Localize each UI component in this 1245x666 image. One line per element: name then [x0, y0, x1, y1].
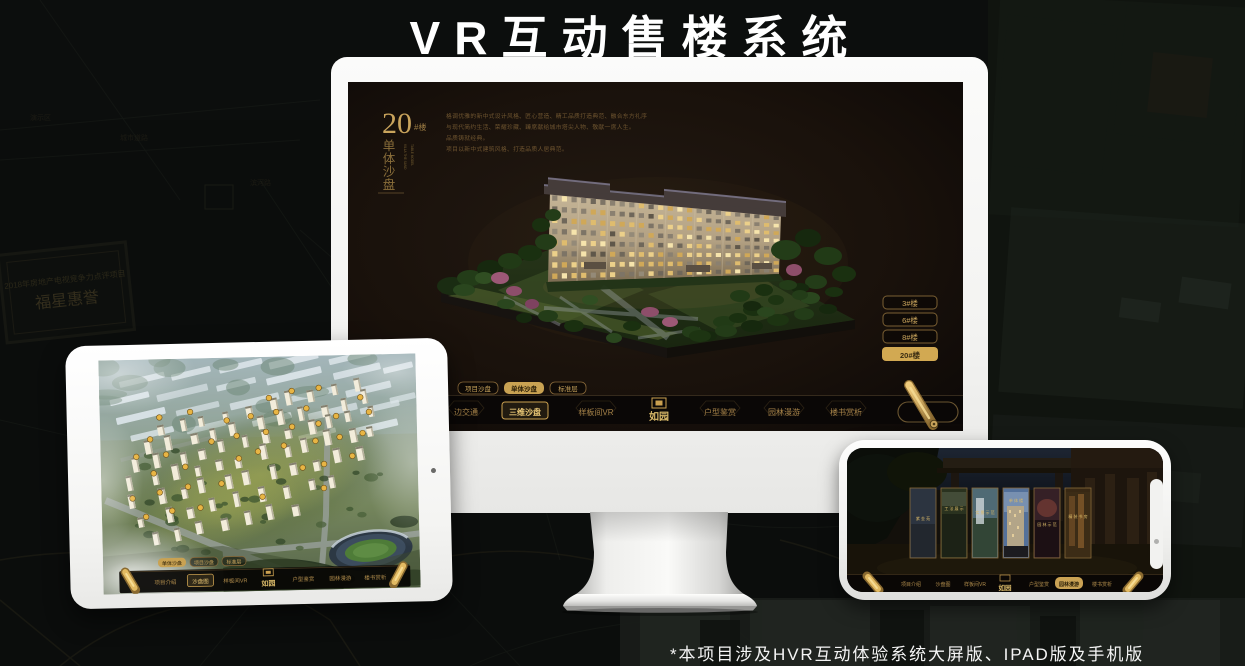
svg-text:单体沙盘: 单体沙盘 — [511, 384, 538, 393]
svg-text:样板间VR: 样板间VR — [964, 581, 986, 588]
svg-text:边交通: 边交通 — [454, 407, 478, 417]
svg-text:8#楼: 8#楼 — [902, 332, 918, 342]
svg-text:TABLE MODEL: TABLE MODEL — [410, 144, 414, 166]
svg-text:城市道路: 城市道路 — [120, 133, 148, 142]
svg-text:三维沙盘: 三维沙盘 — [509, 407, 541, 417]
svg-text:20: 20 — [382, 107, 412, 140]
svg-text:格调优雅的新中式设计风格、匠心营造、精工品质打造典范、融合东: 格调优雅的新中式设计风格、匠心营造、精工品质打造典范、融合东方礼序 — [446, 112, 647, 120]
svg-text:实 景 示 范: 实 景 示 范 — [975, 509, 994, 515]
svg-text:标准层: 标准层 — [558, 384, 578, 393]
svg-text:项目以新中式建筑风格、打造品质人居典范。: 项目以新中式建筑风格、打造品质人居典范。 — [446, 145, 568, 153]
svg-text:单体沙盘: 单体沙盘 — [162, 560, 182, 567]
svg-text:楼书赏析: 楼书赏析 — [1092, 581, 1112, 588]
svg-text:如园: 如园 — [649, 410, 669, 423]
svg-text:滨河路: 滨河路 — [250, 178, 271, 187]
svg-text:盘: 盘 — [383, 177, 396, 192]
svg-text:#楼: #楼 — [414, 122, 426, 132]
svg-text:园 林 示 范: 园 林 示 范 — [1037, 521, 1056, 527]
svg-text:如园: 如园 — [999, 583, 1013, 592]
svg-text:单 体 楼: 单 体 楼 — [1009, 497, 1023, 503]
svg-text:沙盘图: 沙盘图 — [935, 581, 950, 588]
svg-text:标准层: 标准层 — [226, 558, 241, 565]
svg-text:单: 单 — [383, 139, 396, 153]
svg-text:3#楼: 3#楼 — [902, 298, 918, 308]
svg-text:体: 体 — [383, 152, 396, 166]
svg-text:演示区: 演示区 — [30, 113, 51, 122]
svg-text:VILLA THE SAND: VILLA THE SAND — [403, 144, 407, 170]
svg-text:项目介绍: 项目介绍 — [901, 581, 921, 588]
svg-text:沙: 沙 — [383, 165, 396, 179]
svg-text:6#楼: 6#楼 — [902, 315, 918, 325]
svg-text:精 装 书 房: 精 装 书 房 — [1068, 513, 1087, 519]
svg-text:园林漫游: 园林漫游 — [1059, 581, 1079, 588]
svg-text:楼书赏析: 楼书赏析 — [830, 407, 862, 417]
svg-text:户型鉴赏: 户型鉴赏 — [1029, 581, 1049, 588]
svg-text:样板间VR: 样板间VR — [578, 407, 613, 417]
svg-text:项目沙盘: 项目沙盘 — [194, 559, 214, 566]
svg-text:20#楼: 20#楼 — [900, 350, 921, 360]
svg-text:如园: 如园 — [261, 579, 275, 588]
svg-text:与现代简约生活、荣耀珍藏、臻席献给城市塔尖人物、敬献一席人生: 与现代简约生活、荣耀珍藏、臻席献给城市塔尖人物、敬献一席人生。 — [446, 123, 635, 131]
svg-text:户型鉴赏: 户型鉴赏 — [704, 407, 736, 417]
svg-text:园林漫游: 园林漫游 — [768, 407, 800, 417]
svg-text:项目沙盘: 项目沙盘 — [465, 384, 492, 393]
svg-text:工 法 展 示: 工 法 展 示 — [944, 505, 963, 511]
svg-text:品质铸就经典。: 品质铸就经典。 — [446, 134, 489, 142]
svg-text:紫 金 苑: 紫 金 苑 — [916, 515, 930, 521]
